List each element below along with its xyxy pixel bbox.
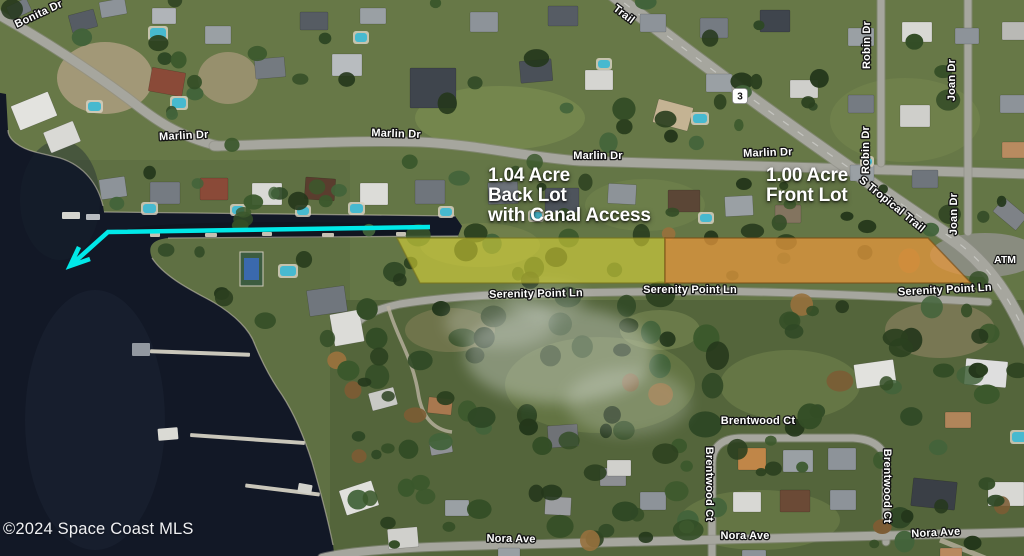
building [470,12,498,32]
building [945,412,971,428]
dock [396,232,406,236]
tree [921,296,943,319]
lot-overlay-front [665,238,971,283]
back-lot-line3: with Canal Access [488,206,651,226]
route-marker-label: 3 [737,92,743,103]
tree [612,98,635,121]
building [360,183,388,205]
building [760,10,790,32]
building [360,8,386,24]
tree [399,440,419,459]
listing-photo: 3Bonita DrTrailMarlin DrMarlin DrMarlin … [0,0,1024,556]
dock [62,212,80,219]
street-label-robin-dr: Robin Dr [861,20,873,69]
building [780,490,810,512]
tree [292,74,308,85]
tree [352,431,365,442]
building [724,195,753,216]
tree [467,499,492,519]
building [415,180,445,204]
building [1002,22,1024,40]
tree [665,208,679,217]
tree [541,485,562,501]
tree [429,433,453,450]
street-label-joan-dr: Joan Dr [946,58,958,101]
street-label-nora-ave: Nora Ave [486,533,535,546]
tree [840,212,853,221]
dock [205,233,217,237]
tree [404,407,427,422]
pool [1012,432,1024,442]
tree [659,332,675,347]
building [828,448,856,470]
building [1000,95,1024,113]
tree [438,92,457,114]
building [205,26,231,44]
tree [380,517,396,529]
tree [416,488,436,504]
pool [88,102,101,111]
building [548,6,578,26]
tree [702,30,719,47]
building [99,176,128,199]
tree [524,49,549,67]
tree [929,440,948,455]
tree [616,119,632,134]
tree [337,360,359,380]
tree [393,273,407,286]
building [306,285,347,316]
street-label-nora-ave: Nora Ave [720,530,769,542]
tree [689,136,704,150]
tree [964,536,982,550]
tree [320,330,335,347]
building [848,95,874,113]
tree [148,35,168,51]
building [830,490,856,510]
tree [254,312,275,329]
water-highlight [25,290,165,550]
mls-watermark: ©2024 Space Coast MLS [3,520,194,539]
tree [664,130,678,143]
tree [765,436,777,446]
pool [172,98,186,108]
tree [371,450,381,460]
tree [900,407,922,426]
building [940,548,962,556]
tree [741,224,764,239]
pool [280,266,296,276]
tree [753,20,764,30]
tree [977,211,989,223]
tree [652,443,678,464]
building [445,500,469,516]
tree [797,403,822,429]
tree [679,520,694,533]
tree [443,522,456,532]
tree [363,490,378,506]
street-label-brentwood-ct: Brentwood Ct [703,447,715,522]
street-label-marlin-dr: Marlin Dr [573,150,623,162]
tree [680,461,692,472]
tree [158,243,175,256]
tree [974,385,1000,405]
tree [381,443,395,453]
tree [961,304,972,318]
tree [987,495,1005,507]
front-lot-line1: 1.00 Acre [766,166,848,186]
tree [296,251,312,268]
tree [236,207,251,218]
tree [194,246,204,257]
tree [736,178,752,190]
terrain-patch [198,52,258,104]
tree [448,171,469,186]
dock [86,214,100,220]
building [585,70,613,90]
building [200,178,228,200]
tree [519,419,538,436]
tree [187,75,202,90]
tree [869,540,879,549]
tree [889,338,913,357]
poi-label-atm: ATM [994,254,1016,266]
tree [934,499,948,513]
tree [158,52,172,65]
tree [370,348,388,366]
building [150,182,180,204]
tree [826,371,853,392]
tennis-court-inner [244,258,259,280]
tree [976,364,988,375]
tree [858,220,876,233]
tree [72,28,92,46]
tree [765,461,782,475]
building [640,14,666,32]
tree [365,328,387,350]
tree [356,298,377,320]
tree [331,184,347,197]
tree [785,324,804,339]
tree [109,197,124,210]
street-label-marlin-dr: Marlin Dr [371,127,421,141]
tree [702,373,724,399]
tree [358,378,372,387]
tree [309,179,326,194]
tree [408,351,433,371]
tree [796,462,808,473]
tree [598,524,614,537]
street-label-nora-ave: Nora Ave [911,526,961,541]
tree [166,109,178,120]
pool [440,208,452,216]
tree [617,295,636,317]
pool [143,204,156,213]
front-lot-line2: Front Lot [766,186,848,206]
tree [143,166,156,180]
building [742,550,766,556]
building [912,170,938,188]
lot-overlay-back [397,238,665,283]
tree [215,289,233,306]
building [152,8,176,24]
building [955,28,979,44]
street-label-serenity-point-ln: Serenity Point Ln [489,287,583,301]
tree [714,94,727,110]
building [607,460,631,476]
pool [598,60,610,68]
dock [262,232,272,236]
pool [700,214,712,222]
tree [772,215,787,231]
street-label-brentwood-ct: Brentwood Ct [721,415,796,427]
tree [467,407,495,428]
back-lot-annotation: 1.04 Acre Back Lot with Canal Access [488,166,651,226]
pool [693,114,707,123]
satellite-map: 3Bonita DrTrailMarlin DrMarlin DrMarlin … [0,0,1024,556]
tree [835,300,849,313]
street-label-marlin-dr: Marlin Dr [743,146,793,160]
street-label-robin-dr: Robin Dr [860,125,872,174]
tree [411,475,430,491]
tree [727,439,748,460]
tree [971,329,988,344]
tree [655,111,677,128]
tree [560,103,574,114]
tree [319,195,333,207]
building [911,478,958,510]
haze [566,368,690,436]
tree [546,515,573,538]
pool [355,33,367,42]
tree [402,155,418,169]
tree [352,449,367,463]
building [1002,142,1024,158]
tree [880,376,894,390]
tree [801,96,815,108]
street-label-joan-dr: Joan Dr [948,192,960,235]
tree [978,477,995,490]
front-lot-annotation: 1.00 Acre Front Lot [766,166,848,206]
building [300,12,328,30]
building [706,74,732,92]
tree [580,530,600,551]
tree [997,196,1007,207]
tree [665,481,689,501]
tree [532,437,552,455]
tree [224,138,239,152]
tree [319,33,332,45]
tree [338,72,355,87]
tree [612,502,638,522]
tree [382,391,395,402]
tree [933,363,954,377]
tree [584,464,607,481]
tree [288,192,309,210]
building [900,105,930,127]
tree [559,432,580,450]
tree [437,391,455,405]
dock [322,233,334,237]
tree [467,76,482,89]
building [498,548,520,556]
street-label-serenity-point-ln: Serenity Point Ln [643,284,737,296]
pool [350,204,363,213]
street-label-brentwood-ct: Brentwood Ct [881,449,893,524]
tree [192,178,204,189]
building [640,492,666,510]
building [733,492,761,512]
tree [806,306,819,316]
back-lot-line1: 1.04 Acre [488,166,651,186]
tree [639,532,654,543]
tree [529,485,544,503]
tree [689,411,722,437]
tree [706,341,729,370]
tree [810,69,829,88]
dock [132,343,150,356]
back-lot-line2: Back Lot [488,186,651,206]
tree [432,301,450,316]
tree [389,540,400,548]
dock [158,427,179,441]
tree [734,119,743,131]
tree [268,187,279,200]
tree [905,34,923,50]
tree [901,510,913,523]
tree [248,46,267,61]
tree [750,74,762,89]
tree [171,51,187,68]
